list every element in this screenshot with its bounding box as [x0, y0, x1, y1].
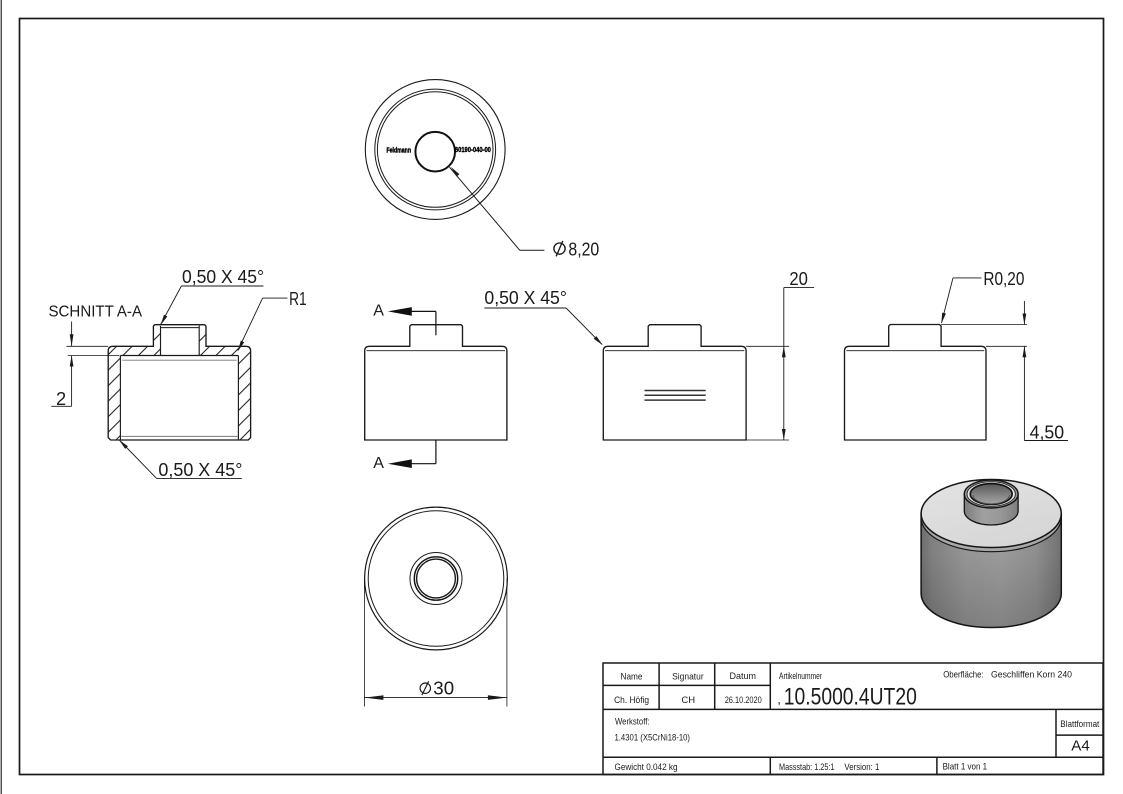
svg-text:Oberfläche:: Oberfläche: [943, 670, 984, 681]
svg-text:Werkstoff:: Werkstoff: [615, 716, 650, 727]
svg-text:30: 30 [433, 678, 454, 699]
svg-text:2: 2 [56, 388, 66, 409]
svg-text:A4: A4 [1071, 738, 1090, 755]
svg-text:Datum: Datum [730, 671, 757, 681]
svg-text:Geschliffen Korn 240: Geschliffen Korn 240 [991, 670, 1072, 681]
svg-text:Gewicht 0.042 kg: Gewicht 0.042 kg [615, 762, 678, 773]
svg-text:60190-040-00: 60190-040-00 [455, 147, 491, 154]
svg-text:26.10.2020: 26.10.2020 [725, 695, 762, 706]
svg-text:R1: R1 [289, 288, 307, 309]
svg-text:CH: CH [681, 695, 695, 706]
svg-text:A: A [373, 455, 384, 472]
svg-text:Massstab: 1.25:1: Massstab: 1.25:1 [779, 762, 835, 773]
svg-text:,: , [777, 692, 781, 707]
svg-text:0,50 X 45°: 0,50 X 45° [158, 459, 242, 480]
svg-text:10.5000.4UT20: 10.5000.4UT20 [784, 684, 917, 711]
svg-text:Feldmann: Feldmann [387, 146, 412, 155]
svg-text:8,20: 8,20 [568, 239, 599, 260]
svg-text:SCHNITT A-A: SCHNITT A-A [49, 304, 143, 321]
svg-text:Version: 1: Version: 1 [844, 762, 879, 773]
svg-text:Ch. Höfig: Ch. Höfig [614, 695, 649, 706]
svg-text:Artikelnummer: Artikelnummer [779, 671, 822, 681]
svg-text:Signatur: Signatur [672, 672, 704, 682]
svg-text:Name: Name [621, 672, 643, 682]
svg-text:0,50 X 45°: 0,50 X 45° [484, 287, 567, 308]
svg-text:20: 20 [789, 268, 808, 289]
svg-text:1.4301 (X5CrNi18-10): 1.4301 (X5CrNi18-10) [615, 733, 691, 744]
svg-text:0,50 X 45°: 0,50 X 45° [182, 266, 264, 287]
svg-text:A: A [373, 302, 384, 319]
svg-text:4,50: 4,50 [1030, 421, 1065, 442]
svg-text:Blatt 1 von 1: Blatt 1 von 1 [943, 761, 988, 772]
svg-text:Blattformat: Blattformat [1060, 719, 1099, 729]
svg-text:R0,20: R0,20 [983, 268, 1024, 289]
